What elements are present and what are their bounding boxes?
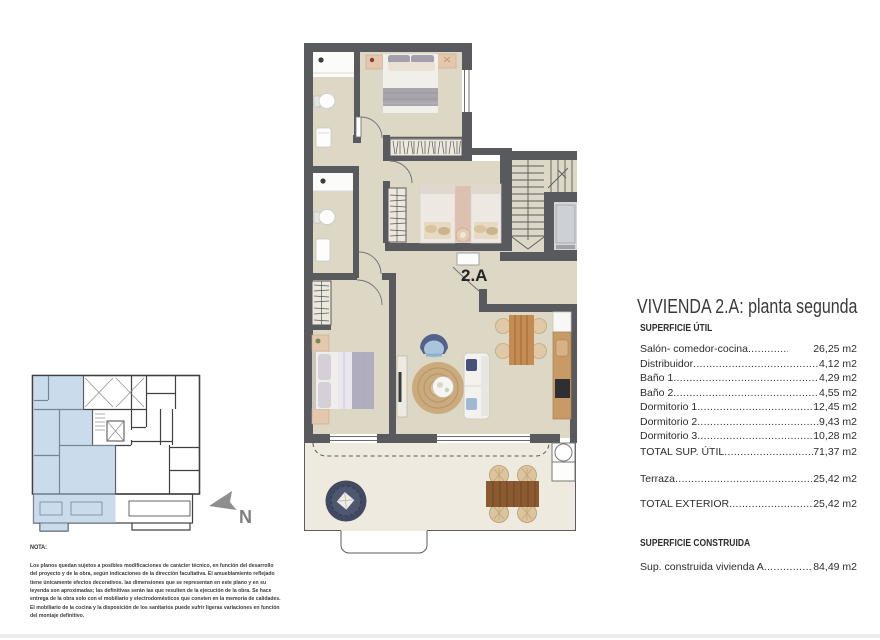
svg-text:2.A: 2.A — [461, 266, 487, 285]
svg-text:N: N — [239, 507, 252, 527]
